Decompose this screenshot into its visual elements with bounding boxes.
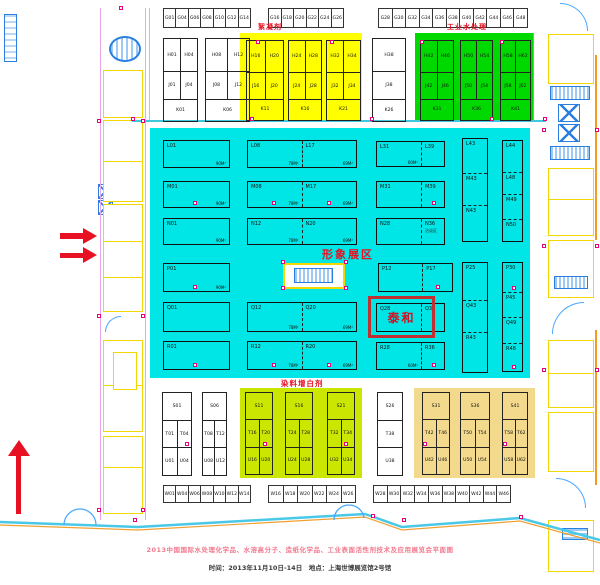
booth-L44: L44 (503, 141, 522, 172)
booth-K16: K16 (289, 100, 321, 120)
plan-date-venue: 时间：2013年11月10日-14日 地点：上海世博展览馆2号馆 (0, 562, 600, 572)
booth-S21: S21 (328, 393, 354, 419)
booth-P30: P30 (503, 263, 522, 292)
marker-dot (423, 442, 427, 446)
booth-block: P0190M² (163, 263, 230, 292)
entrance-arrow-head (83, 228, 97, 244)
booth-T08: T08 (203, 421, 214, 448)
service-room (548, 340, 594, 408)
booth-block: P12P17 (378, 263, 453, 292)
booth-G44: G44 (486, 8, 501, 28)
booth-G26: G26 (331, 8, 345, 28)
escalator-icon (109, 36, 141, 62)
marker-dot (141, 508, 145, 512)
taihe-label: 泰和 (387, 309, 415, 326)
booth-G24: G24 (318, 8, 332, 28)
escalator-icon (550, 86, 590, 100)
booth-T62: T62 (515, 420, 528, 446)
escalator-icon (554, 276, 588, 289)
marker-dot (141, 314, 145, 318)
booth-H16: H16 (247, 41, 265, 72)
booth-block: M0878M²M1769M² (247, 181, 357, 208)
booth-M31: M31 (377, 182, 421, 207)
booth-H62: H62 (515, 41, 530, 72)
booth-block: H32H34J32J34K21 (326, 40, 361, 121)
booth-H08: H08 (206, 39, 227, 71)
marker-dot (97, 314, 101, 318)
booth-H04: H04 (180, 39, 197, 71)
marker-dot (97, 508, 101, 512)
door-arc-icon (105, 316, 121, 332)
booth-block: S31T42T46U42U46 (422, 392, 450, 475)
booth-K31: K31 (421, 100, 453, 120)
booth-J28: J28 (305, 73, 322, 99)
service-room (548, 240, 594, 298)
booth-U54: U54 (475, 448, 490, 474)
booth-U08: U08 (203, 448, 214, 475)
booth-U38: U38 (378, 448, 402, 475)
marker-dot (542, 128, 546, 132)
booth-block: L3160M²L39 (376, 141, 445, 167)
service-room (548, 168, 594, 236)
booth-H54: H54 (476, 41, 492, 72)
marker-dot (263, 442, 267, 446)
booth-R36: R36 (421, 343, 444, 369)
booth-S16: S16 (286, 393, 312, 419)
taihe-highlight-box: 泰和 (368, 296, 435, 338)
booth-J58: J58 (501, 73, 515, 99)
booth-L31: L3160M² (377, 142, 421, 166)
booth-P12: P12 (379, 264, 422, 291)
booth-U20: U20 (259, 448, 273, 474)
marker-dot (330, 40, 334, 44)
booth-Q01: Q01 (164, 303, 229, 331)
marker-dot (119, 6, 123, 10)
booth-block: P25Q43R43 (462, 262, 488, 373)
booth-G18: G18 (281, 8, 295, 28)
booth-G36: G36 (432, 8, 447, 28)
booth-G12: G12 (225, 8, 238, 28)
booth-G48: G48 (513, 8, 528, 28)
service-room (103, 70, 143, 118)
booth-J34: J34 (343, 73, 360, 99)
booth-U58: U58 (503, 448, 515, 474)
booth-J24: J24 (289, 73, 305, 99)
booth-T32: T32 (328, 420, 341, 446)
booth-U32: U32 (328, 448, 341, 474)
entrance-arrow (60, 233, 83, 239)
booth-H28: H28 (305, 41, 322, 72)
booth-G10: G10 (213, 8, 226, 28)
booth-J04: J04 (180, 72, 197, 99)
booth-H32: H32 (327, 41, 343, 72)
booth-N50: N50 (503, 219, 522, 241)
booth-N01: N0190M² (164, 219, 229, 244)
booth-R48: R48 (503, 343, 522, 371)
marker-dot (131, 117, 135, 121)
booth-H50: H50 (461, 41, 476, 72)
booth-K21: K21 (327, 100, 360, 120)
booth-M49: M49 (503, 194, 522, 219)
marker-dot (97, 119, 101, 123)
region-title-image-zone: 形象展区 (322, 246, 374, 262)
booth-U24: U24 (286, 448, 299, 474)
booth-N43: N43 (463, 205, 487, 241)
booth-M08: M0878M² (248, 182, 302, 207)
booth-M43: M43 (463, 173, 487, 206)
booth-block: S41T58T62U58U62 (502, 392, 528, 475)
booth-Q49: Q49 (503, 317, 522, 344)
booth-G20: G20 (293, 8, 307, 28)
booth-H46: H46 (437, 41, 454, 72)
booth-L01: L0190M² (164, 141, 229, 167)
entrance-arrow (60, 253, 83, 258)
booth-P17: P17 (422, 264, 452, 291)
marker-dot (500, 40, 504, 44)
marker-dot (402, 518, 406, 522)
booth-J42: J42 (421, 73, 437, 99)
booth-block: R1278M²R2069M² (247, 341, 357, 370)
service-room (103, 120, 143, 202)
escalator-icon (283, 263, 345, 289)
booth-M01: M0190M² (164, 182, 229, 207)
booth-T54: T54 (475, 420, 490, 446)
booth-G30: G30 (392, 8, 407, 28)
booth-block: H24H28J24J28K16 (288, 40, 322, 121)
booth-S41: S41 (503, 393, 527, 419)
region-title-dye-whitening: 染料增白剂 (281, 378, 324, 389)
left-corridor (100, 8, 146, 520)
booth-block: S26T38U38 (377, 392, 403, 476)
marker-dot (185, 442, 189, 446)
booth-U01: U01 (163, 448, 177, 475)
region-title-flocculant: 絮凝剂 (258, 22, 282, 32)
booth-J16: J16 (247, 73, 265, 99)
booth-N20: N2069M² (302, 219, 357, 244)
booth-R12: R1278M² (248, 342, 302, 369)
elevator-icon (558, 104, 580, 122)
booth-block: H38J38K26 (372, 38, 406, 122)
door-arc-icon (560, 3, 588, 31)
marker-dot (344, 260, 348, 264)
booth-Q12: Q1278M² (248, 303, 302, 331)
booth-block: L0878M²L1769M² (247, 140, 357, 168)
marker-dot (595, 128, 599, 132)
booth-block: S16T24T28U24U28 (285, 392, 313, 475)
entrance-arrow-up-head (8, 440, 30, 456)
booth-U16: U16 (246, 448, 259, 474)
booth-K01: K01 (164, 100, 197, 121)
booth-N28: N28 (377, 219, 421, 244)
booth-T46: T46 (436, 420, 450, 446)
booth-block: N1278M²N2069M² (247, 218, 357, 245)
booth-T01: T01 (163, 421, 177, 448)
booth-L08: L0878M² (248, 141, 302, 167)
booth-N36: N36洽谈区 (421, 219, 444, 244)
booth-block: R2860M²R36 (376, 342, 445, 370)
marker-dot (490, 117, 494, 121)
booth-L43: L43 (463, 139, 487, 173)
booth-J46: J46 (437, 73, 454, 99)
booth-block: M0190M² (163, 181, 230, 208)
booth-block: S06T08T12U08U12 (202, 392, 227, 476)
region-title-industrial-water: 工业水处理 (447, 22, 487, 32)
marker-dot (542, 244, 546, 248)
booth-U50: U50 (461, 448, 475, 474)
booth-block: H50H54J50J54K36 (460, 40, 493, 121)
booth-T38: T38 (378, 421, 402, 448)
booth-S11: S11 (246, 393, 272, 419)
service-room (103, 204, 143, 312)
marker-dot (420, 40, 424, 44)
service-room (113, 352, 137, 390)
booth-H42: H42 (421, 41, 437, 72)
booth-J08: J08 (206, 72, 227, 99)
booth-L39: L39 (421, 142, 444, 166)
booth-J50: J50 (461, 73, 476, 99)
booth-T24: T24 (286, 420, 299, 446)
booth-U28: U28 (299, 448, 313, 474)
marker-dot (543, 117, 547, 121)
booth-block: H58H62J58J62K41 (500, 40, 531, 121)
elevator-icon (558, 124, 580, 142)
booth-J32: J32 (327, 73, 343, 99)
booth-block: M31M39 (376, 181, 445, 208)
booth-M39: M39 (421, 182, 444, 207)
wall-line (595, 330, 597, 485)
service-room (548, 34, 594, 84)
booth-S26: S26 (378, 393, 402, 420)
wall-line (149, 8, 150, 122)
booth-H58: H58 (501, 41, 515, 72)
booth-block: H01H04J01J04K01 (163, 38, 198, 122)
marker-dot (281, 286, 285, 290)
booth-block: H16H20J16J20K11 (246, 40, 284, 121)
booth-L48: L48 (503, 172, 522, 194)
booth-S06: S06 (203, 393, 226, 420)
divider-line (533, 33, 534, 121)
booth-U04: U04 (177, 448, 192, 475)
booth-H24: H24 (289, 41, 305, 72)
booth-P45: P45 (503, 292, 522, 317)
booth-R43: R43 (463, 332, 487, 372)
booth-block: S21T32T34U32U34 (327, 392, 355, 475)
booth-S01: S01 (163, 393, 191, 420)
entrance-arrow-head (83, 247, 97, 263)
plan-title: 2013中国国际水处理化学品、水溶高分子、造纸化学品、工业表面活性剂技术及应用展… (0, 544, 600, 554)
marker-dot (141, 119, 145, 123)
booth-G46: G46 (500, 8, 515, 28)
marker-dot (281, 260, 285, 264)
booth-U46: U46 (436, 448, 450, 474)
booth-R01: R01 (164, 342, 229, 369)
booth-G08: G08 (200, 8, 213, 28)
booth-H38: H38 (373, 39, 405, 71)
marker-dot (370, 117, 374, 121)
booth-R20: R2069M² (302, 342, 357, 369)
booth-H01: H01 (164, 39, 180, 71)
booth-block: S11T16T20U16U20 (245, 392, 273, 475)
stairs-icon (4, 14, 17, 62)
booth-G14: G14 (238, 8, 251, 28)
marker-dot (250, 117, 254, 121)
booth-block: L44L48M49N50 (502, 140, 523, 242)
booth-block: L0190M² (163, 140, 230, 168)
right-corridor (544, 0, 600, 585)
booth-J20: J20 (265, 73, 284, 99)
marker-dot (344, 442, 348, 446)
booth-T16: T16 (246, 420, 259, 446)
g-booth-strip-1: G01G04G06G08G10G12G14 (163, 8, 251, 28)
booth-T50: T50 (461, 420, 475, 446)
booth-U62: U62 (515, 448, 528, 474)
booth-J54: J54 (476, 73, 492, 99)
marker-dot (595, 368, 599, 372)
booth-R28: R2860M² (377, 343, 421, 369)
wall-line (595, 55, 597, 240)
booth-block: H08H12J08J12K06 (205, 38, 250, 122)
booth-K36: K36 (461, 100, 492, 120)
booth-G04: G04 (175, 8, 188, 28)
booth-block: L43M43N43 (462, 138, 488, 242)
booth-block: Q1278M²Q2069M² (247, 302, 357, 332)
booth-J01: J01 (164, 72, 180, 99)
booth-K06: K06 (206, 100, 249, 121)
service-room (548, 412, 594, 472)
booth-J62: J62 (515, 73, 530, 99)
booth-N12: N1278M² (248, 219, 302, 244)
booth-G32: G32 (405, 8, 420, 28)
exhibition-floor-plan: G01G04G06G08G10G12G14 G16G18G20G22G24G26… (0, 0, 600, 585)
booth-G01: G01 (163, 8, 176, 28)
booth-S36: S36 (461, 393, 489, 419)
booth-Q20: Q2069M² (302, 303, 357, 331)
booth-P25: P25 (463, 263, 487, 300)
booth-G28: G28 (378, 8, 393, 28)
booth-block: Q01 (163, 302, 230, 332)
escalator-icon (550, 146, 590, 160)
booth-block: P30P45Q49R48 (502, 262, 523, 372)
booth-G34: G34 (419, 8, 434, 28)
booth-T28: T28 (299, 420, 313, 446)
booth-S31: S31 (423, 393, 449, 419)
marker-dot (344, 286, 348, 290)
booth-block: R01 (163, 341, 230, 370)
marker-dot (133, 518, 137, 522)
booth-M17: M1769M² (302, 182, 357, 207)
marker-dot (256, 40, 260, 44)
marker-dot (519, 515, 523, 519)
marker-dot (503, 442, 507, 446)
booth-L17: L1769M² (302, 141, 357, 167)
booth-G22: G22 (306, 8, 320, 28)
booth-H20: H20 (265, 41, 284, 72)
booth-U42: U42 (423, 448, 436, 474)
booth-block: S36T50T54U50U54 (460, 392, 490, 475)
booth-block: H42H46J42J46K31 (420, 40, 454, 121)
booth-K26: K26 (373, 100, 405, 121)
booth-J38: J38 (373, 72, 405, 99)
booth-U34: U34 (341, 448, 355, 474)
booth-P01: P0190M² (164, 264, 229, 291)
booth-block: N28N36洽谈区 (376, 218, 445, 245)
booth-H34: H34 (343, 41, 360, 72)
booth-G06: G06 (188, 8, 201, 28)
booth-block: N0190M² (163, 218, 230, 245)
booth-Q43: Q43 (463, 300, 487, 333)
booth-block: S01T01T04U01U04 (162, 392, 192, 476)
booth-U12: U12 (214, 448, 226, 475)
booth-T12: T12 (214, 421, 226, 448)
booth-K41: K41 (501, 100, 530, 120)
marker-dot (542, 368, 546, 372)
door-arc-icon (552, 302, 584, 334)
marker-dot (371, 514, 375, 518)
marker-dot (595, 244, 599, 248)
